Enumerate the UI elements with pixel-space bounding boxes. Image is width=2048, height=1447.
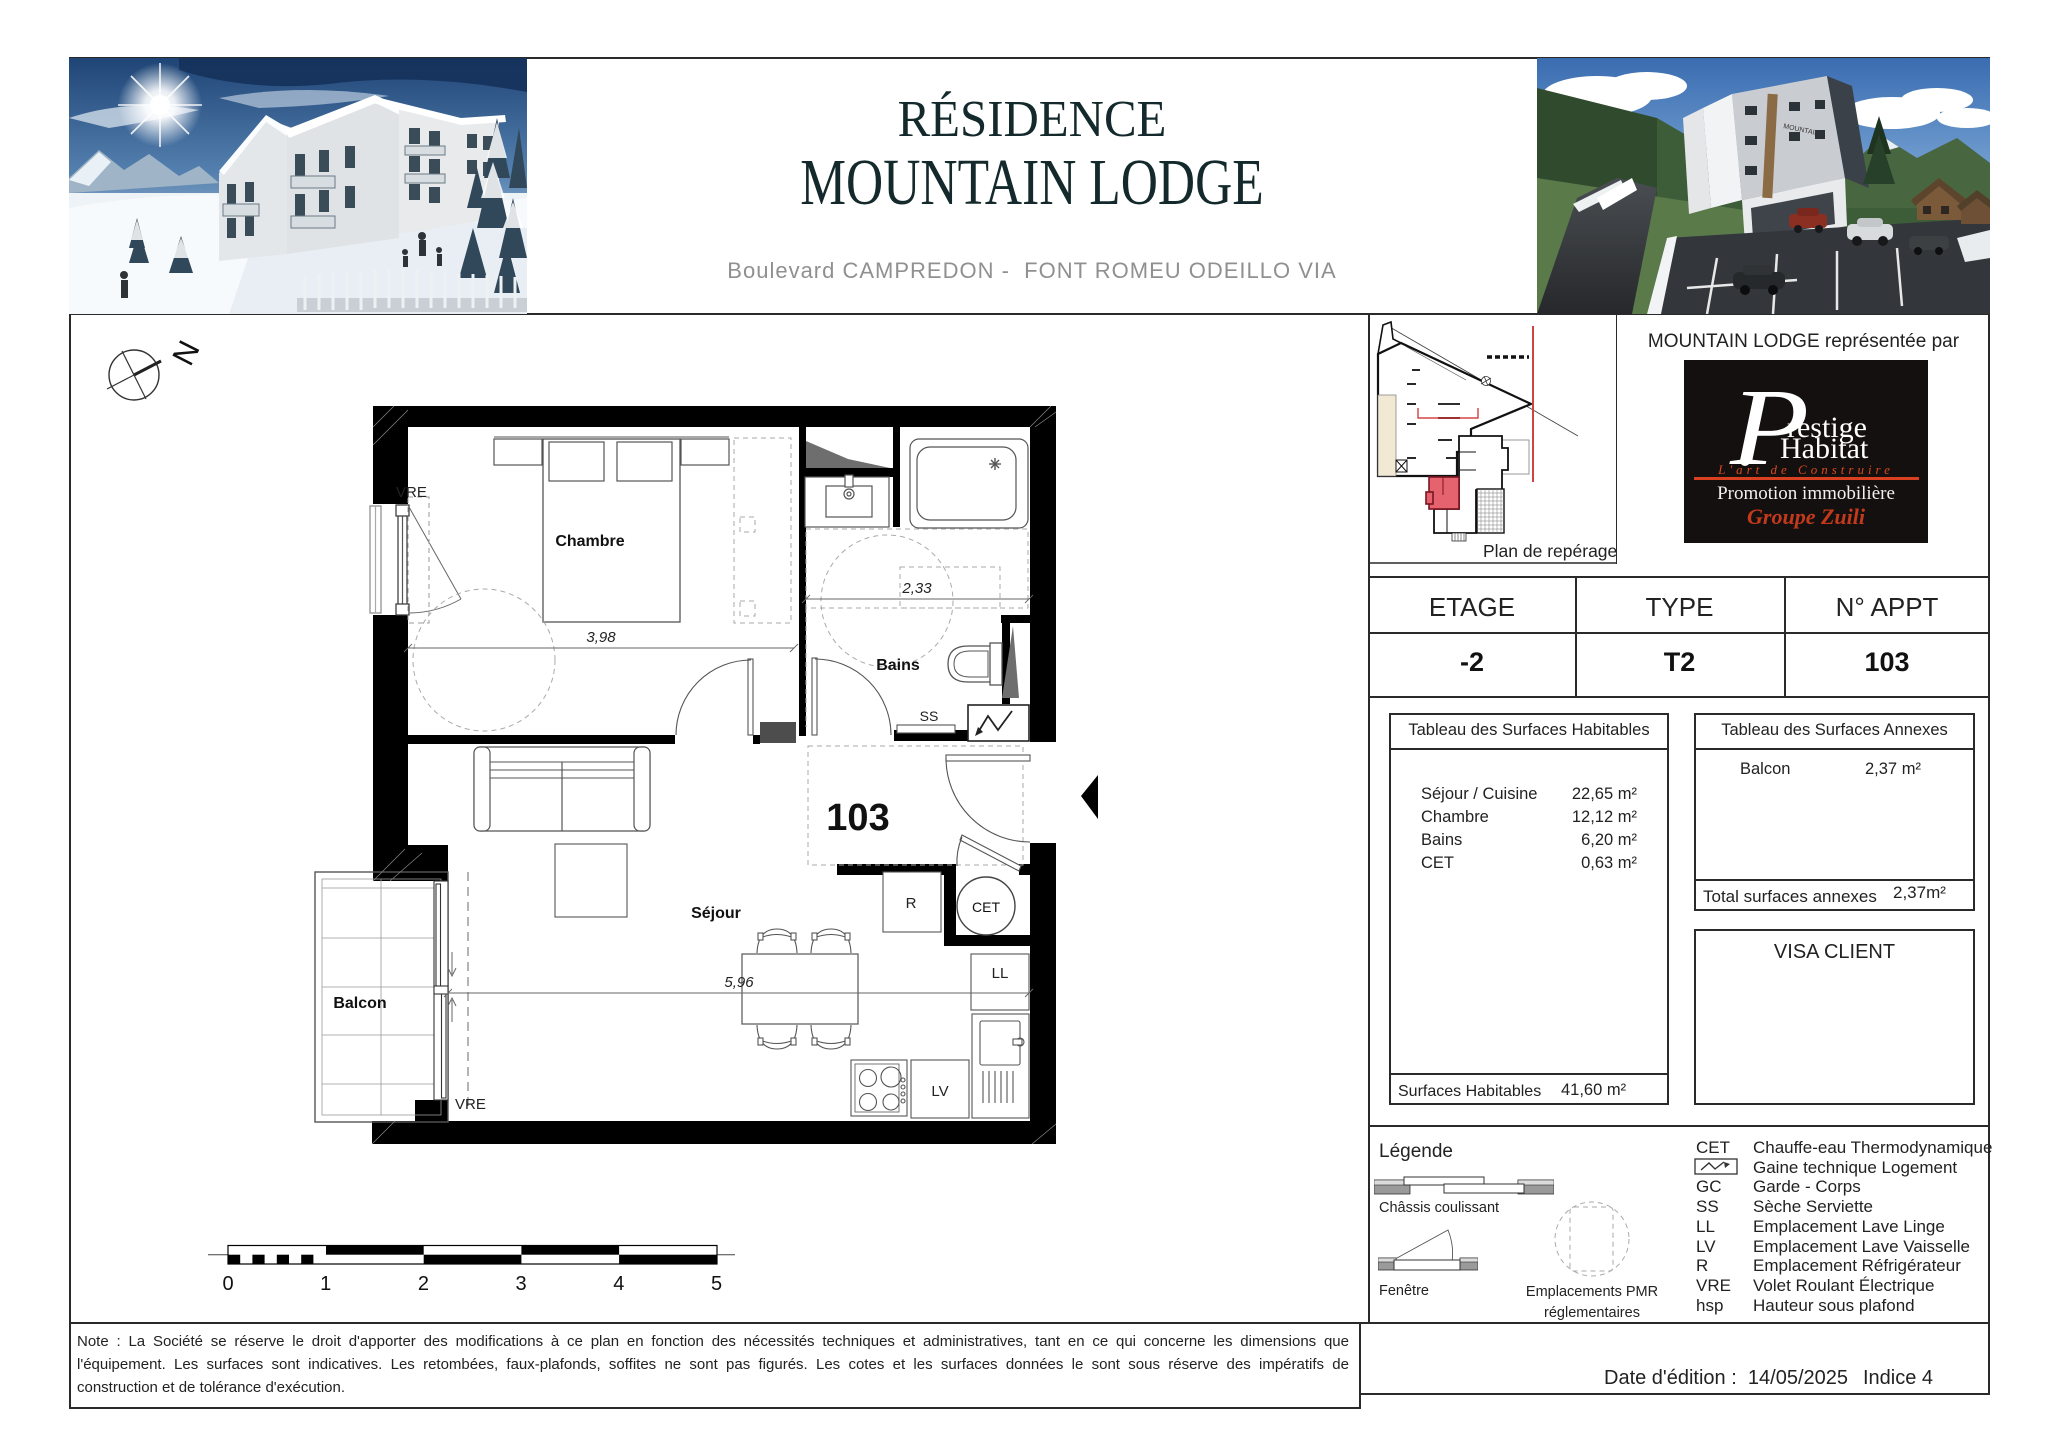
svg-text:LV: LV bbox=[931, 1083, 948, 1100]
svg-text:3,98: 3,98 bbox=[586, 629, 616, 646]
svg-text:R: R bbox=[906, 895, 917, 912]
svg-text:Balcon: Balcon bbox=[333, 995, 386, 1012]
svg-text:Chambre: Chambre bbox=[555, 533, 624, 550]
svg-text:3: 3 bbox=[516, 1273, 527, 1295]
svg-text:103: 103 bbox=[826, 797, 889, 839]
svg-text:SS: SS bbox=[920, 708, 939, 724]
svg-text:VRE: VRE bbox=[455, 1096, 486, 1113]
svg-text:2: 2 bbox=[418, 1273, 429, 1295]
svg-text:2,33: 2,33 bbox=[901, 580, 932, 597]
svg-text:N: N bbox=[165, 335, 206, 371]
svg-text:CET: CET bbox=[972, 899, 1000, 915]
svg-text:VRE: VRE bbox=[396, 484, 427, 501]
svg-text:1: 1 bbox=[320, 1273, 331, 1295]
svg-text:0: 0 bbox=[222, 1273, 233, 1295]
svg-text:Séjour: Séjour bbox=[691, 905, 741, 922]
svg-text:5,96: 5,96 bbox=[724, 974, 754, 991]
svg-text:4: 4 bbox=[613, 1273, 624, 1295]
svg-text:Bains: Bains bbox=[876, 657, 920, 674]
svg-text:5: 5 bbox=[711, 1273, 722, 1295]
svg-text:LL: LL bbox=[992, 965, 1009, 982]
